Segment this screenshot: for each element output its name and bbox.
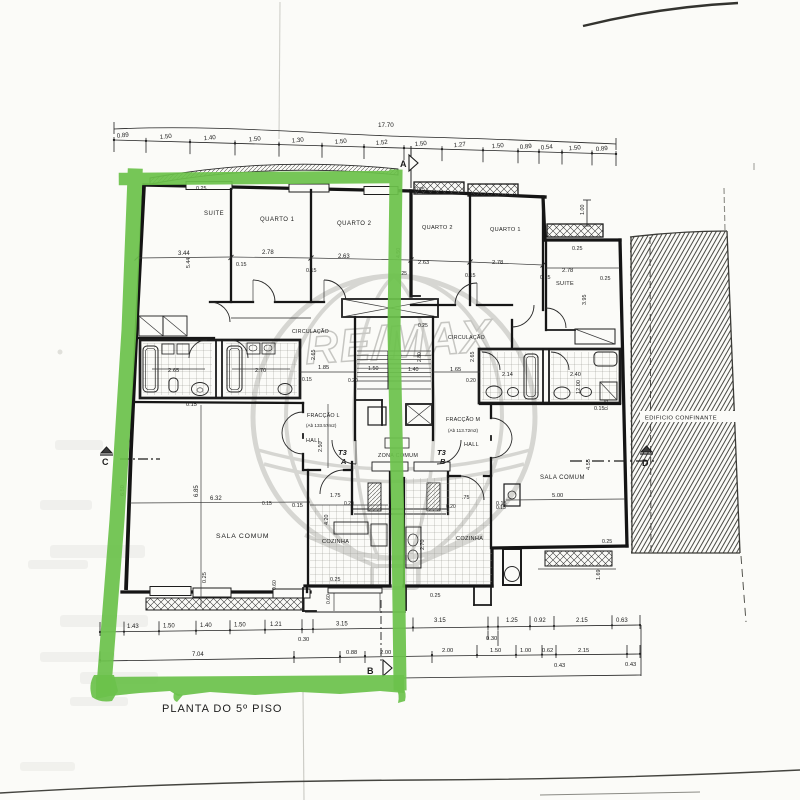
- svg-text:1.50: 1.50: [368, 366, 379, 372]
- svg-text:0.20: 0.20: [446, 504, 456, 510]
- svg-text:QUARTO 1: QUARTO 1: [490, 227, 521, 233]
- svg-text:2.50: 2.50: [318, 442, 324, 453]
- svg-text:QUARTO 2: QUARTO 2: [422, 225, 453, 231]
- svg-text:1.50: 1.50: [334, 138, 347, 146]
- svg-text:0.54: 0.54: [540, 143, 553, 151]
- svg-text:0.15: 0.15: [604, 400, 610, 410]
- svg-text:1.50: 1.50: [248, 135, 261, 143]
- svg-text:1.50: 1.50: [414, 140, 427, 148]
- svg-text:0.89: 0.89: [595, 145, 608, 153]
- svg-text:PLANTA DO 5º PISO: PLANTA DO 5º PISO: [162, 703, 282, 715]
- svg-text:0.15: 0.15: [292, 503, 303, 509]
- svg-text:COZINHA: COZINHA: [456, 536, 483, 542]
- svg-text:0.20: 0.20: [348, 378, 358, 384]
- svg-text:6.85: 6.85: [194, 485, 200, 497]
- svg-text:2.78: 2.78: [562, 268, 573, 274]
- svg-text:0.89: 0.89: [116, 132, 129, 140]
- svg-text:17.70: 17.70: [378, 122, 394, 129]
- svg-text:0.15: 0.15: [236, 262, 247, 268]
- svg-text:C: C: [102, 457, 109, 467]
- svg-text:4.20: 4.20: [324, 515, 330, 526]
- svg-text:SUITE: SUITE: [204, 211, 224, 217]
- svg-text:1.50: 1.50: [568, 144, 581, 152]
- svg-text:0.25: 0.25: [572, 246, 583, 252]
- svg-text:1.50: 1.50: [491, 142, 504, 150]
- svg-text:0.60: 0.60: [272, 580, 278, 590]
- svg-text:CIRCULAÇÃO: CIRCULAÇÃO: [448, 334, 485, 341]
- svg-text:1.43: 1.43: [127, 624, 139, 630]
- svg-text:0.30: 0.30: [298, 637, 309, 643]
- svg-text:0.25: 0.25: [202, 572, 208, 583]
- svg-text:FRACÇÃO L: FRACÇÃO L: [307, 412, 340, 419]
- svg-text:2.00: 2.00: [442, 648, 453, 654]
- svg-text:1.50: 1.50: [490, 648, 501, 654]
- svg-text:1.40: 1.40: [203, 134, 216, 142]
- svg-text:QUARTO 2: QUARTO 2: [337, 221, 372, 227]
- svg-text:2.78: 2.78: [262, 250, 274, 256]
- svg-text:2.15: 2.15: [578, 648, 589, 654]
- svg-text:0.92: 0.92: [534, 618, 546, 624]
- svg-text:(Ab 133.57m2): (Ab 133.57m2): [306, 423, 337, 428]
- svg-text:0.43: 0.43: [554, 663, 565, 669]
- svg-text:0.89: 0.89: [519, 143, 532, 151]
- svg-text:CIRCULAÇÃO: CIRCULAÇÃO: [292, 328, 329, 335]
- svg-text:HALL: HALL: [464, 442, 479, 448]
- svg-text:1.00: 1.00: [520, 648, 531, 654]
- svg-text:0.15: 0.15: [496, 501, 507, 507]
- svg-text:A: A: [400, 159, 407, 169]
- svg-text:0.60: 0.60: [326, 594, 332, 604]
- svg-text:0.88: 0.88: [346, 650, 357, 656]
- svg-text:2.65: 2.65: [470, 352, 476, 363]
- svg-text:SUITE: SUITE: [556, 281, 574, 287]
- svg-text:0.15: 0.15: [186, 402, 197, 408]
- svg-text:B: B: [367, 666, 374, 676]
- svg-text:COZINHA: COZINHA: [322, 539, 349, 545]
- svg-text:2.63: 2.63: [338, 254, 350, 260]
- svg-text:2.00: 2.00: [380, 650, 391, 656]
- svg-text:.75: .75: [462, 495, 470, 501]
- svg-text:1.75: 1.75: [330, 493, 341, 499]
- svg-text:0.25: 0.25: [602, 539, 612, 545]
- svg-text:0.15: 0.15: [302, 377, 312, 383]
- svg-text:(Ab 113.72m2): (Ab 113.72m2): [448, 428, 479, 433]
- svg-text:1.25: 1.25: [506, 618, 518, 624]
- svg-text:1.85: 1.85: [318, 365, 329, 371]
- svg-text:1.00: 1.00: [580, 205, 586, 216]
- svg-text:0.43: 0.43: [625, 662, 636, 668]
- svg-text:SALA COMUM: SALA COMUM: [216, 533, 269, 540]
- svg-text:1.40: 1.40: [408, 367, 419, 373]
- svg-text:1.50: 1.50: [159, 133, 172, 141]
- svg-text:0.20: 0.20: [466, 378, 476, 384]
- svg-text:0.15: 0.15: [594, 406, 605, 412]
- svg-text:1.30: 1.30: [291, 136, 304, 144]
- svg-text:5.00: 5.00: [552, 493, 563, 499]
- svg-text:0.62: 0.62: [542, 648, 553, 654]
- svg-text:QUARTO 1: QUARTO 1: [260, 217, 295, 223]
- svg-text:0.63: 0.63: [616, 618, 628, 624]
- svg-text:2.15: 2.15: [576, 618, 588, 624]
- svg-text:2.65: 2.65: [311, 350, 317, 361]
- svg-text:3.15: 3.15: [434, 618, 446, 624]
- svg-text:1.69: 1.69: [596, 570, 602, 581]
- svg-text:1.50: 1.50: [234, 623, 246, 629]
- svg-text:5.44: 5.44: [186, 258, 192, 268]
- svg-text:FRACÇÃO M: FRACÇÃO M: [446, 416, 480, 423]
- svg-text:0.25: 0.25: [418, 323, 428, 329]
- svg-text:2.63: 2.63: [418, 260, 429, 266]
- svg-text:2.80: 2.80: [417, 352, 423, 362]
- svg-text:T3: T3: [338, 448, 348, 457]
- svg-text:3.95: 3.95: [582, 295, 588, 306]
- svg-text:0.15: 0.15: [306, 268, 317, 274]
- svg-text:B: B: [440, 457, 446, 466]
- svg-text:1.21: 1.21: [270, 622, 282, 628]
- svg-text:1.27: 1.27: [453, 141, 466, 149]
- svg-text:2.78: 2.78: [492, 260, 503, 266]
- svg-text:1.50: 1.50: [163, 624, 175, 630]
- svg-text:0.25: 0.25: [196, 186, 207, 192]
- svg-text:EDIFICIO CONFINANTE: EDIFICIO CONFINANTE: [645, 416, 717, 422]
- svg-text:0.15: 0.15: [262, 501, 272, 507]
- svg-text:2.14: 2.14: [502, 372, 513, 378]
- svg-text:6.32: 6.32: [210, 496, 222, 502]
- svg-text:2.70: 2.70: [420, 540, 426, 551]
- svg-text:1.40: 1.40: [200, 623, 212, 629]
- svg-text:0.25: 0.25: [330, 577, 341, 583]
- svg-text:2.40: 2.40: [570, 372, 581, 378]
- svg-text:3.15: 3.15: [336, 621, 348, 627]
- svg-text:7.04: 7.04: [192, 652, 204, 658]
- svg-text:3.44: 3.44: [178, 251, 190, 257]
- svg-text:1.65: 1.65: [450, 367, 461, 373]
- svg-text:SALA COMUM: SALA COMUM: [540, 475, 585, 481]
- svg-text:D: D: [642, 458, 649, 468]
- svg-text:0.25: 0.25: [600, 276, 611, 282]
- svg-text:12.00: 12.00: [576, 380, 582, 394]
- svg-text:T3: T3: [437, 448, 447, 457]
- svg-text:0.25: 0.25: [430, 593, 441, 599]
- svg-text:1.52: 1.52: [375, 139, 388, 147]
- svg-text:0.15: 0.15: [465, 273, 476, 279]
- svg-text:0.15: 0.15: [540, 275, 551, 281]
